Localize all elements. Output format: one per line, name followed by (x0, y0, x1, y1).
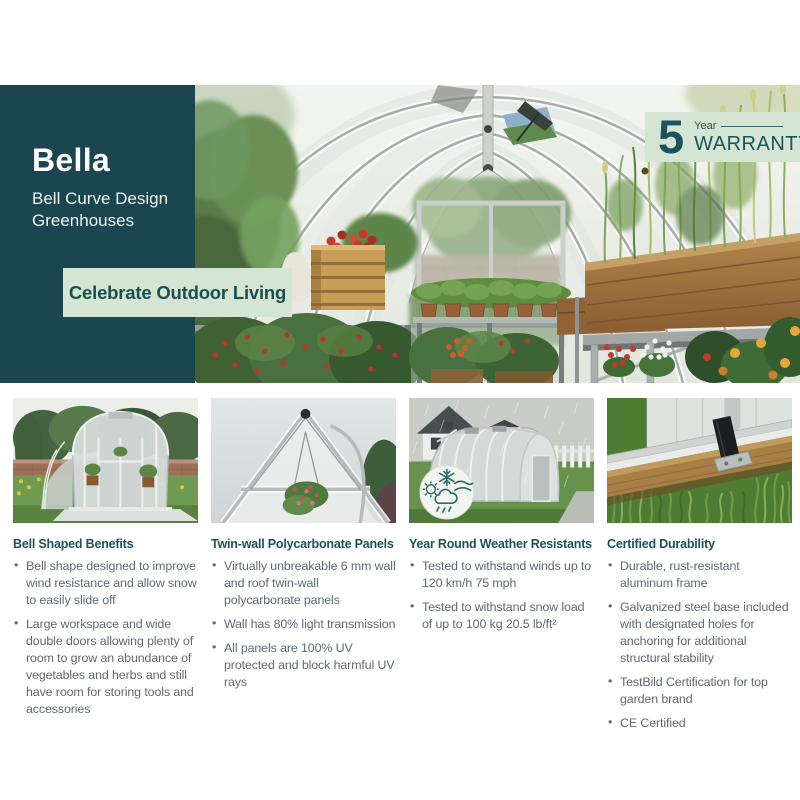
feature-title: Twin-wall Polycarbonate Panels (211, 537, 396, 551)
feature-bullet: Wall has 80% light transmission (211, 616, 396, 633)
feature-bullet: Durable, rust-resistant aluminum frame (607, 558, 792, 592)
page: Bella Bell Curve DesignGreenhouses Celeb… (0, 0, 800, 800)
feature-bullet: All panels are 100% UV protected and blo… (211, 640, 396, 691)
feature-title: Certified Durability (607, 537, 792, 551)
feature-list: Tested to withstand winds up to 120 km/h… (409, 558, 594, 633)
feature-bullet: Tested to withstand winds up to 120 km/h… (409, 558, 594, 592)
brand-panel: Bella Bell Curve DesignGreenhouses (0, 85, 195, 383)
feature-bullet: Virtually unbreakable 6 mm wall and roof… (211, 558, 396, 609)
warranty-divider-line (721, 126, 783, 127)
feature-bullet: Galvanized steel base included with desi… (607, 599, 792, 667)
feature-col-polycarbonate: Twin-wall Polycarbonate Panels Virtually… (211, 398, 396, 739)
warranty-years-number: 5 (658, 112, 684, 162)
product-subtitle: Bell Curve DesignGreenhouses (32, 188, 175, 232)
hero-banner: Bella Bell Curve DesignGreenhouses Celeb… (0, 85, 800, 383)
warranty-unit: Year (694, 120, 716, 132)
feature-bullet: Large workspace and wide double doors al… (13, 616, 198, 718)
warranty-text: Year WARRANTY (694, 120, 800, 156)
feature-bullet: CE Certified (607, 715, 792, 732)
tagline-ribbon: Celebrate Outdoor Living (63, 268, 292, 317)
center-bed (409, 323, 567, 383)
features-row: Bell Shaped Benefits Bell shape designed… (13, 398, 792, 739)
product-name: Bella (32, 142, 175, 179)
feature-bullet: Bell shape designed to improve wind resi… (13, 558, 198, 609)
weather-resistance-badge (420, 465, 474, 519)
feature-bullet: TestBild Certification for top garden br… (607, 674, 792, 708)
feature-col-weather: Year Round Weather Resistants Tested to … (409, 398, 594, 739)
feature-bullet: Tested to withstand snow load of up to 1… (409, 599, 594, 633)
warranty-label: WARRANTY (694, 133, 800, 156)
feature-col-durability: Certified Durability Durable, rust-resis… (607, 398, 792, 739)
warranty-badge: 5 Year WARRANTY (645, 112, 800, 162)
feature-col-bell-shaped: Bell Shaped Benefits Bell shape designed… (13, 398, 198, 739)
thumb-roof-apex-photo (211, 398, 396, 523)
thumb-base-corner-photo (607, 398, 792, 523)
feature-title: Bell Shaped Benefits (13, 537, 198, 551)
thumb-bell-greenhouse-photo (13, 398, 198, 523)
thumb-weather-greenhouse-photo (409, 398, 594, 523)
feature-list: Bell shape designed to improve wind resi… (13, 558, 198, 718)
seedling-bench (411, 278, 571, 326)
feature-title: Year Round Weather Resistants (409, 537, 594, 551)
feature-list: Virtually unbreakable 6 mm wall and roof… (211, 558, 396, 691)
left-bench (195, 313, 425, 383)
feature-list: Durable, rust-resistant aluminum frame G… (607, 558, 792, 732)
